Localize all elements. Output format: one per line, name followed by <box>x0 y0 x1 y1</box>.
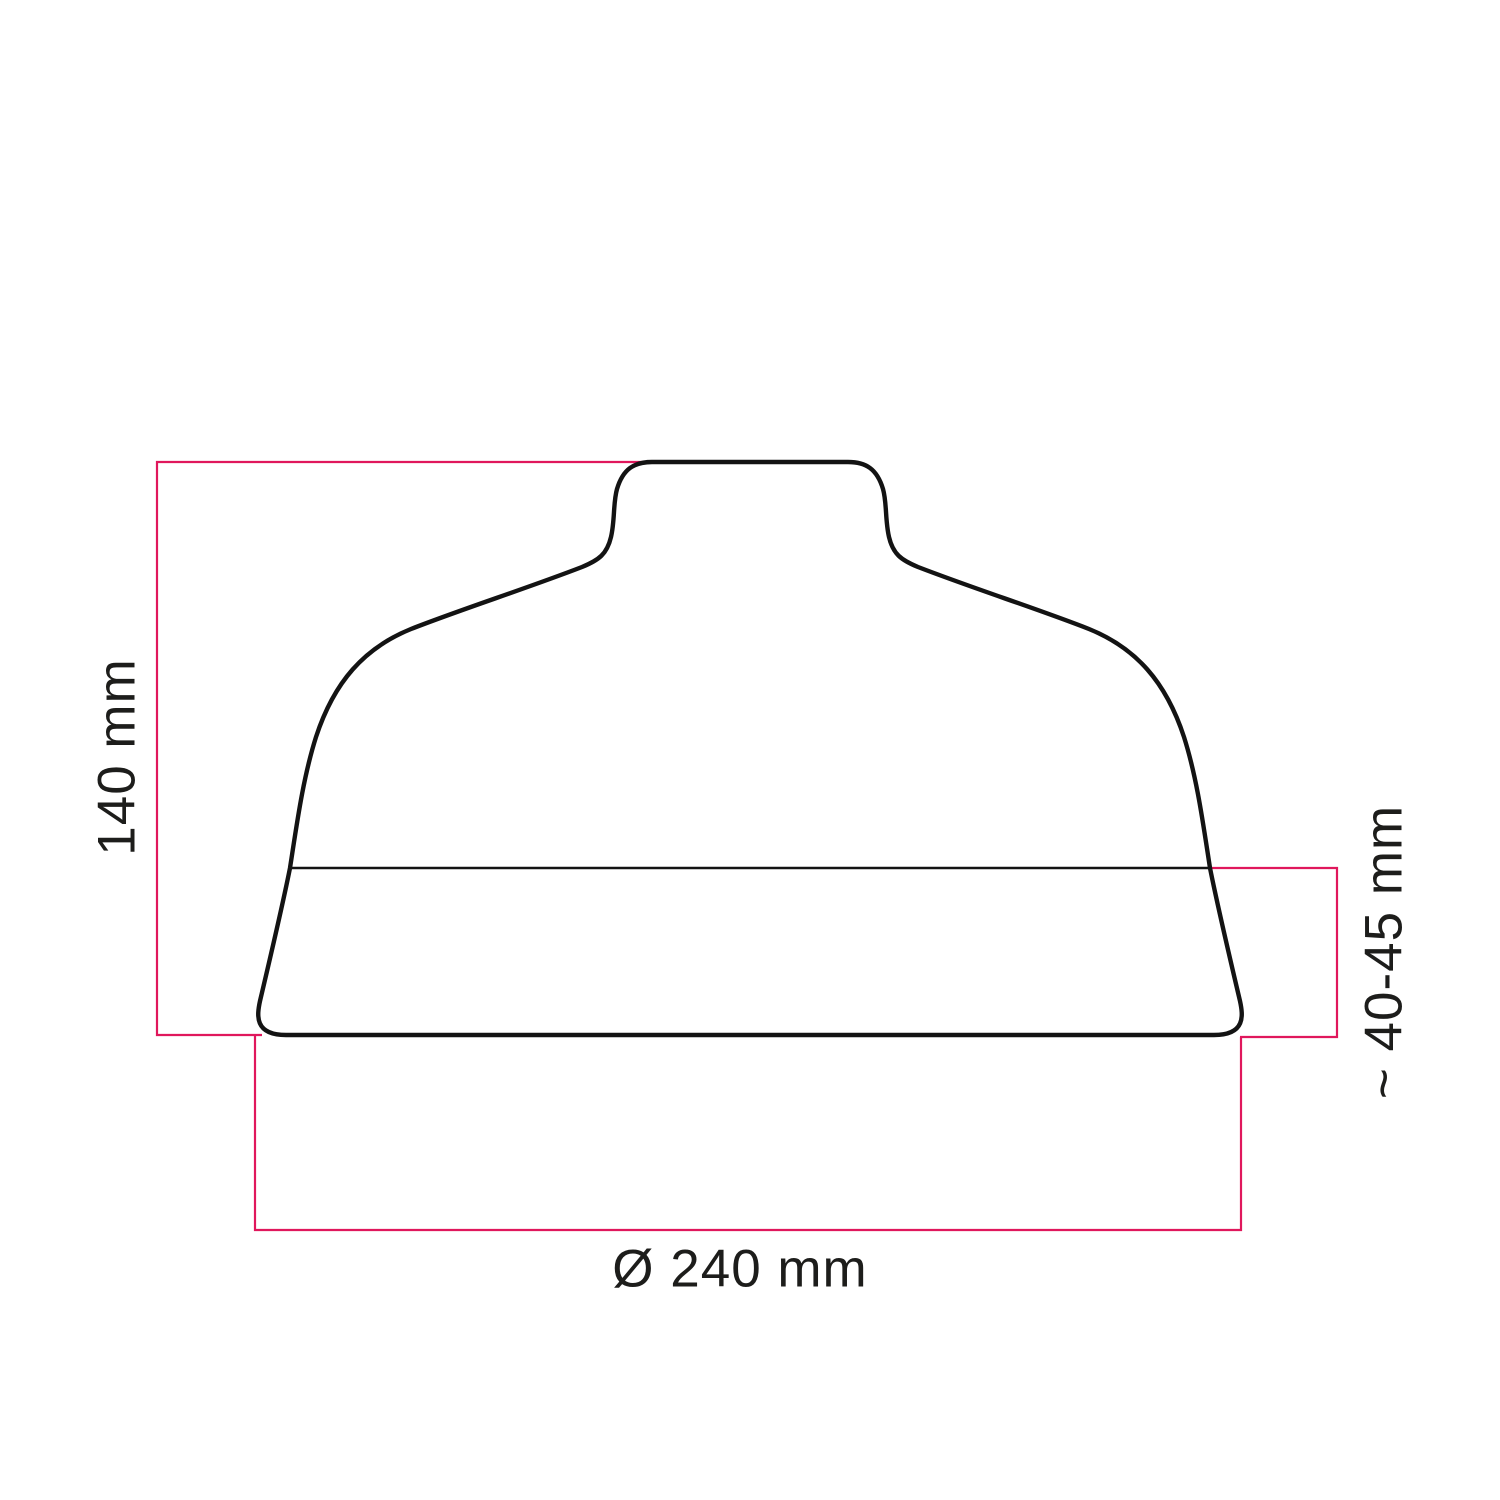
height-dimension-label: 140 mm <box>88 658 147 855</box>
diameter-dimension-bracket <box>255 1035 1241 1230</box>
lampshade-outline <box>258 462 1242 1035</box>
diameter-dimension-label: Ø 240 mm <box>612 1240 867 1299</box>
lampshade-dimension-diagram: 140 mm ~ 40-45 mm Ø 240 mm <box>0 0 1500 1500</box>
height-dimension-bracket <box>157 462 643 1035</box>
lampshade-dimension-drawing-page: 140 mm ~ 40-45 mm Ø 240 mm <box>0 0 1500 1500</box>
band-height-dimension-label: ~ 40-45 mm <box>1355 805 1414 1099</box>
